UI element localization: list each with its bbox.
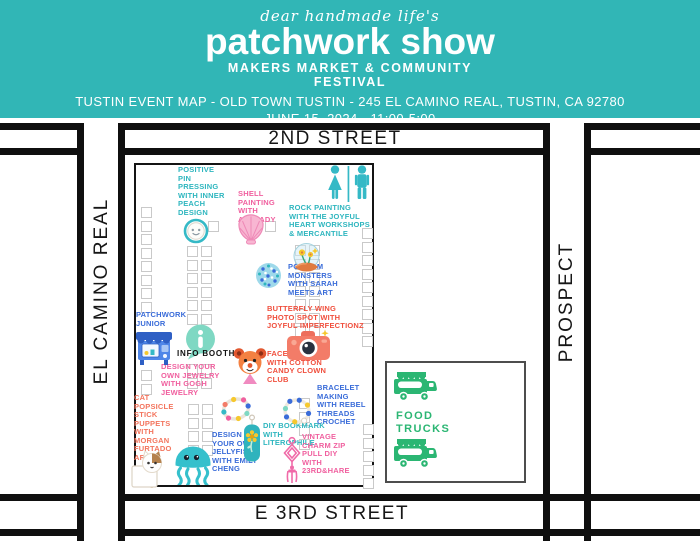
booth-slot: [363, 478, 374, 489]
charm-tassel-icon: [280, 436, 304, 486]
clown-face-icon: [232, 346, 268, 385]
vendor-label-vintage-charm: VINTAGE CHARM ZIP PULL DIY WITH 23RD&HAR…: [302, 433, 350, 476]
booth-slot: [363, 451, 374, 462]
food-truck-icon: [392, 438, 438, 469]
pompom-icon: [253, 260, 284, 291]
street-label-el-camino-real: EL CAMINO REAL: [91, 198, 113, 385]
kids-booth-icon: [135, 331, 173, 365]
booth-slot: [141, 234, 152, 245]
vendor-label-gogh-jewelry: DESIGN YOUR OWN JEWELRY WITH GOGH JEWELR…: [161, 363, 220, 397]
button-pin-icon: [183, 218, 209, 244]
subtitle-line2: FESTIVAL: [0, 75, 700, 89]
vendor-label-positive-pin-pressing: POSITIVE PIN PRESSING WITH INNER PEACH D…: [178, 166, 225, 217]
street-line: [584, 123, 700, 130]
booth-slot: [362, 255, 373, 266]
jellyfish-icon: [171, 441, 215, 485]
street-label-prospect: PROSPECT: [556, 242, 578, 363]
booth-slot: [201, 300, 212, 311]
header: dear handmade life's patchwork show MAKE…: [0, 0, 700, 118]
seashell-icon: [236, 212, 266, 245]
booth-slot: [362, 282, 373, 293]
booth-slot: [141, 261, 152, 272]
booth-slot: [201, 287, 212, 298]
street-line: [118, 494, 700, 501]
street-line: [77, 123, 84, 541]
booth-slot: [141, 207, 152, 218]
booth-slot: [362, 336, 373, 347]
booth-slot: [141, 221, 152, 232]
booth-slot: [202, 404, 213, 415]
restroom-divider: [348, 166, 350, 202]
booth-slot: [187, 300, 198, 311]
event-map-page: dear handmade life's patchwork show MAKE…: [0, 0, 700, 541]
vendor-label-patchwork-junior: PATCHWORK JUNIOR: [136, 311, 186, 328]
camera-icon: [286, 329, 332, 362]
cat-puppet-icon: [130, 450, 172, 490]
food-truck-icon: [392, 371, 438, 402]
booth-slot: [187, 260, 198, 271]
painted-rock-icon: [291, 241, 322, 274]
booth-slot: [208, 221, 219, 232]
street-line: [118, 123, 125, 541]
man-icon: [355, 165, 369, 199]
street-line: [118, 529, 700, 536]
street-line: [584, 123, 591, 541]
booth-slot: [141, 288, 152, 299]
booth-slot: [188, 404, 199, 415]
event-address-line: TUSTIN EVENT MAP - OLD TOWN TUSTIN - 245…: [0, 94, 700, 109]
street-line: [0, 494, 84, 501]
booth-slot: [201, 246, 212, 257]
booth-slot: [363, 465, 374, 476]
street-line: [0, 529, 84, 536]
vendor-label-butterfly-wing: BUTTERFLY WING PHOTO SPOT WITH JOYFUL IM…: [267, 305, 364, 331]
booth-slot: [187, 287, 198, 298]
booth-slot: [188, 418, 199, 429]
booth-slot: [363, 438, 374, 449]
booth-slot: [187, 246, 198, 257]
booth-slot: [201, 273, 212, 284]
food-trucks-label: FOOD TRUCKS: [396, 410, 450, 435]
subtitle-line1: MAKERS MARKET & COMMUNITY: [0, 61, 700, 75]
logo-title: patchwork show: [0, 23, 700, 60]
woman-icon: [328, 165, 342, 199]
vendor-label-rock-painting: ROCK PAINTING WITH THE JOYFUL HEART WORK…: [289, 204, 370, 238]
bookmark-icon: [240, 414, 264, 464]
street-line: [0, 123, 84, 130]
booth-slot: [187, 273, 198, 284]
booth-slot: [141, 370, 152, 381]
restroom-sign: [326, 165, 372, 204]
crochet-bracelet-icon: [277, 391, 317, 431]
street-line: [584, 148, 700, 155]
booth-slot: [362, 269, 373, 280]
street-line: [0, 148, 84, 155]
booth-slot: [362, 242, 373, 253]
booth-slot: [141, 275, 152, 286]
info-booth-label: INFO BOOTH: [177, 349, 235, 358]
booth-slot: [201, 260, 212, 271]
street-label-2nd-street: 2ND STREET: [200, 128, 470, 150]
street-label-e-3rd-street: E 3RD STREET: [197, 503, 467, 525]
street-line: [543, 123, 550, 541]
booth-slot: [202, 418, 213, 429]
booth-slot: [141, 248, 152, 259]
